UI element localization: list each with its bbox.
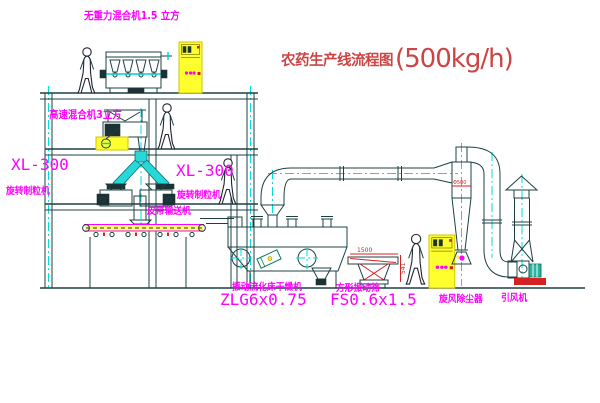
cyclone-dim: Φ500 — [453, 180, 466, 186]
label-cyclone: 旋风除尘器 — [439, 295, 483, 305]
exhaust-stack — [506, 176, 537, 262]
cad-flow-diagram: 1500 541 Φ500 — [0, 0, 600, 403]
label-granulator-left-model: XL-300 — [11, 157, 69, 173]
label-fan: 引风机 — [501, 294, 527, 304]
screen-length-dim: 1500 — [357, 247, 372, 254]
label-screen-model: FS0.6x1.5 — [330, 292, 417, 308]
label-belt-conveyor: 皮带输送机 — [147, 207, 191, 217]
induced-draft-fan — [508, 261, 546, 285]
control-cabinet-1 — [179, 42, 202, 93]
label-granulator-left-name: 旋转制粒机 — [6, 187, 50, 197]
vibrating-screen: 1500 541 — [348, 247, 407, 288]
fluid-bed-dryer — [228, 217, 347, 289]
label-dryer-model: ZLG6x0.75 — [220, 292, 307, 308]
title-text: 农药生产线流程图 — [281, 49, 393, 70]
screen-height-dim: 541 — [400, 262, 407, 274]
label-granulator-right-model: XL-300 — [176, 163, 234, 179]
diagram-title: 农药生产线流程图(500kg/h) — [281, 44, 513, 74]
control-cabinet-2 — [429, 235, 455, 288]
feed-duct — [200, 217, 242, 227]
worker-figure-2 — [158, 104, 175, 149]
exhaust-duct — [261, 166, 434, 227]
label-high-speed-mixer: 高速混合机3立方 — [49, 110, 122, 121]
worker-figure-1 — [78, 48, 95, 93]
worker-figure-4 — [406, 234, 424, 284]
gravity-free-mixer — [100, 52, 172, 93]
label-gravity-mixer: 无重力混合机1.5 立方 — [84, 11, 180, 22]
belt-conveyor — [83, 225, 206, 289]
title-capacity: (500kg/h) — [395, 44, 513, 74]
label-granulator-right-name: 旋转制粒机 — [177, 191, 221, 201]
